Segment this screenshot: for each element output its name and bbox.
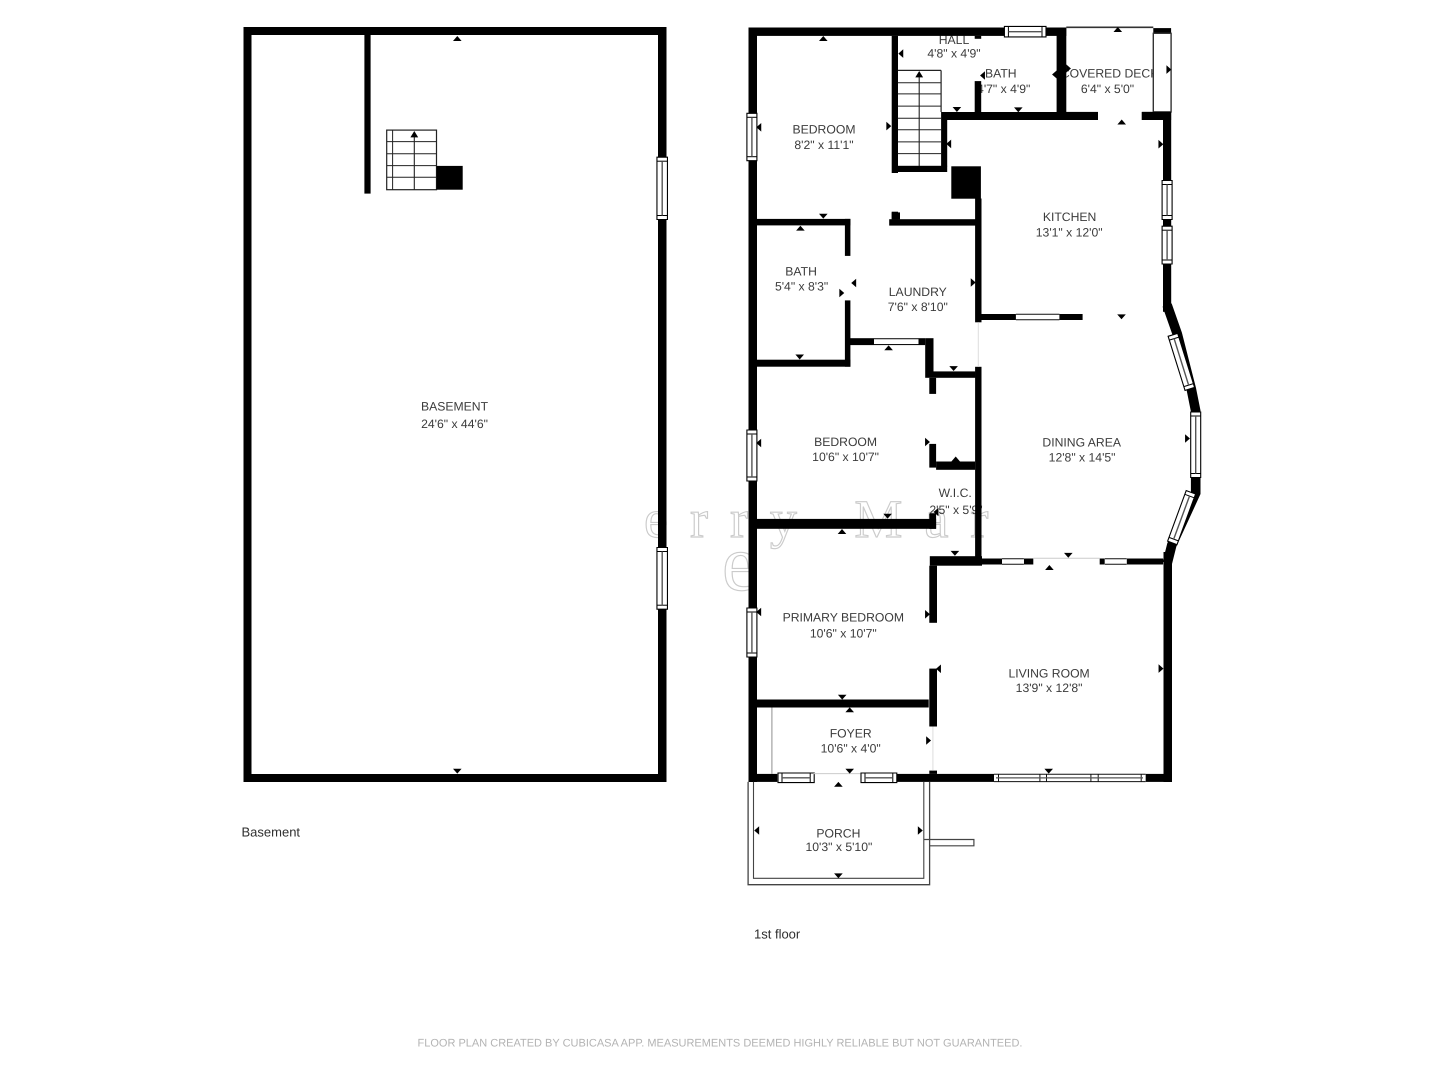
svg-text:6'4" x 5'0": 6'4" x 5'0": [1081, 82, 1134, 96]
svg-text:FLOOR PLAN CREATED BY CUBICASA: FLOOR PLAN CREATED BY CUBICASA APP. MEAS…: [418, 1038, 1023, 1050]
svg-text:10'6" x 4'0": 10'6" x 4'0": [821, 741, 881, 755]
svg-text:PORCH: PORCH: [816, 827, 860, 841]
svg-text:10'6" x 10'7": 10'6" x 10'7": [810, 626, 877, 640]
svg-text:10'6" x 10'7": 10'6" x 10'7": [812, 450, 879, 464]
svg-text:24'6" x 44'6": 24'6" x 44'6": [421, 417, 488, 431]
svg-text:5'4" x 8'3": 5'4" x 8'3": [775, 279, 828, 293]
svg-text:10'3" x 5'10": 10'3" x 5'10": [805, 840, 872, 854]
svg-text:13'9" x 12'8": 13'9" x 12'8": [1016, 681, 1083, 695]
svg-text:BATH: BATH: [785, 265, 817, 279]
svg-text:PRIMARY BEDROOM: PRIMARY BEDROOM: [783, 610, 904, 624]
svg-text:4'7" x 4'9": 4'7" x 4'9": [977, 82, 1030, 96]
svg-text:FOYER: FOYER: [830, 726, 872, 740]
svg-text:BASEMENT: BASEMENT: [421, 400, 489, 414]
svg-text:LAUNDRY: LAUNDRY: [889, 285, 947, 299]
svg-text:13'1" x 12'0": 13'1" x 12'0": [1036, 226, 1103, 240]
svg-text:KITCHEN: KITCHEN: [1043, 210, 1097, 224]
svg-text:W.I.C.: W.I.C.: [939, 486, 972, 500]
svg-text:COVERED DECK: COVERED DECK: [1061, 66, 1159, 80]
svg-text:DINING AREA: DINING AREA: [1042, 436, 1121, 450]
svg-text:LIVING ROOM: LIVING ROOM: [1008, 666, 1089, 680]
svg-text:BEDROOM: BEDROOM: [793, 122, 856, 136]
svg-text:BATH: BATH: [985, 66, 1017, 80]
svg-text:12'8" x 14'5": 12'8" x 14'5": [1049, 450, 1116, 464]
svg-text:8'2" x 11'1": 8'2" x 11'1": [794, 138, 853, 152]
svg-text:7'6" x 8'10": 7'6" x 8'10": [888, 300, 948, 314]
svg-text:1st floor: 1st floor: [754, 927, 801, 942]
svg-text:Basement: Basement: [242, 825, 301, 840]
svg-text:4'8" x 4'9": 4'8" x 4'9": [927, 47, 980, 61]
svg-text:BEDROOM: BEDROOM: [814, 435, 877, 449]
